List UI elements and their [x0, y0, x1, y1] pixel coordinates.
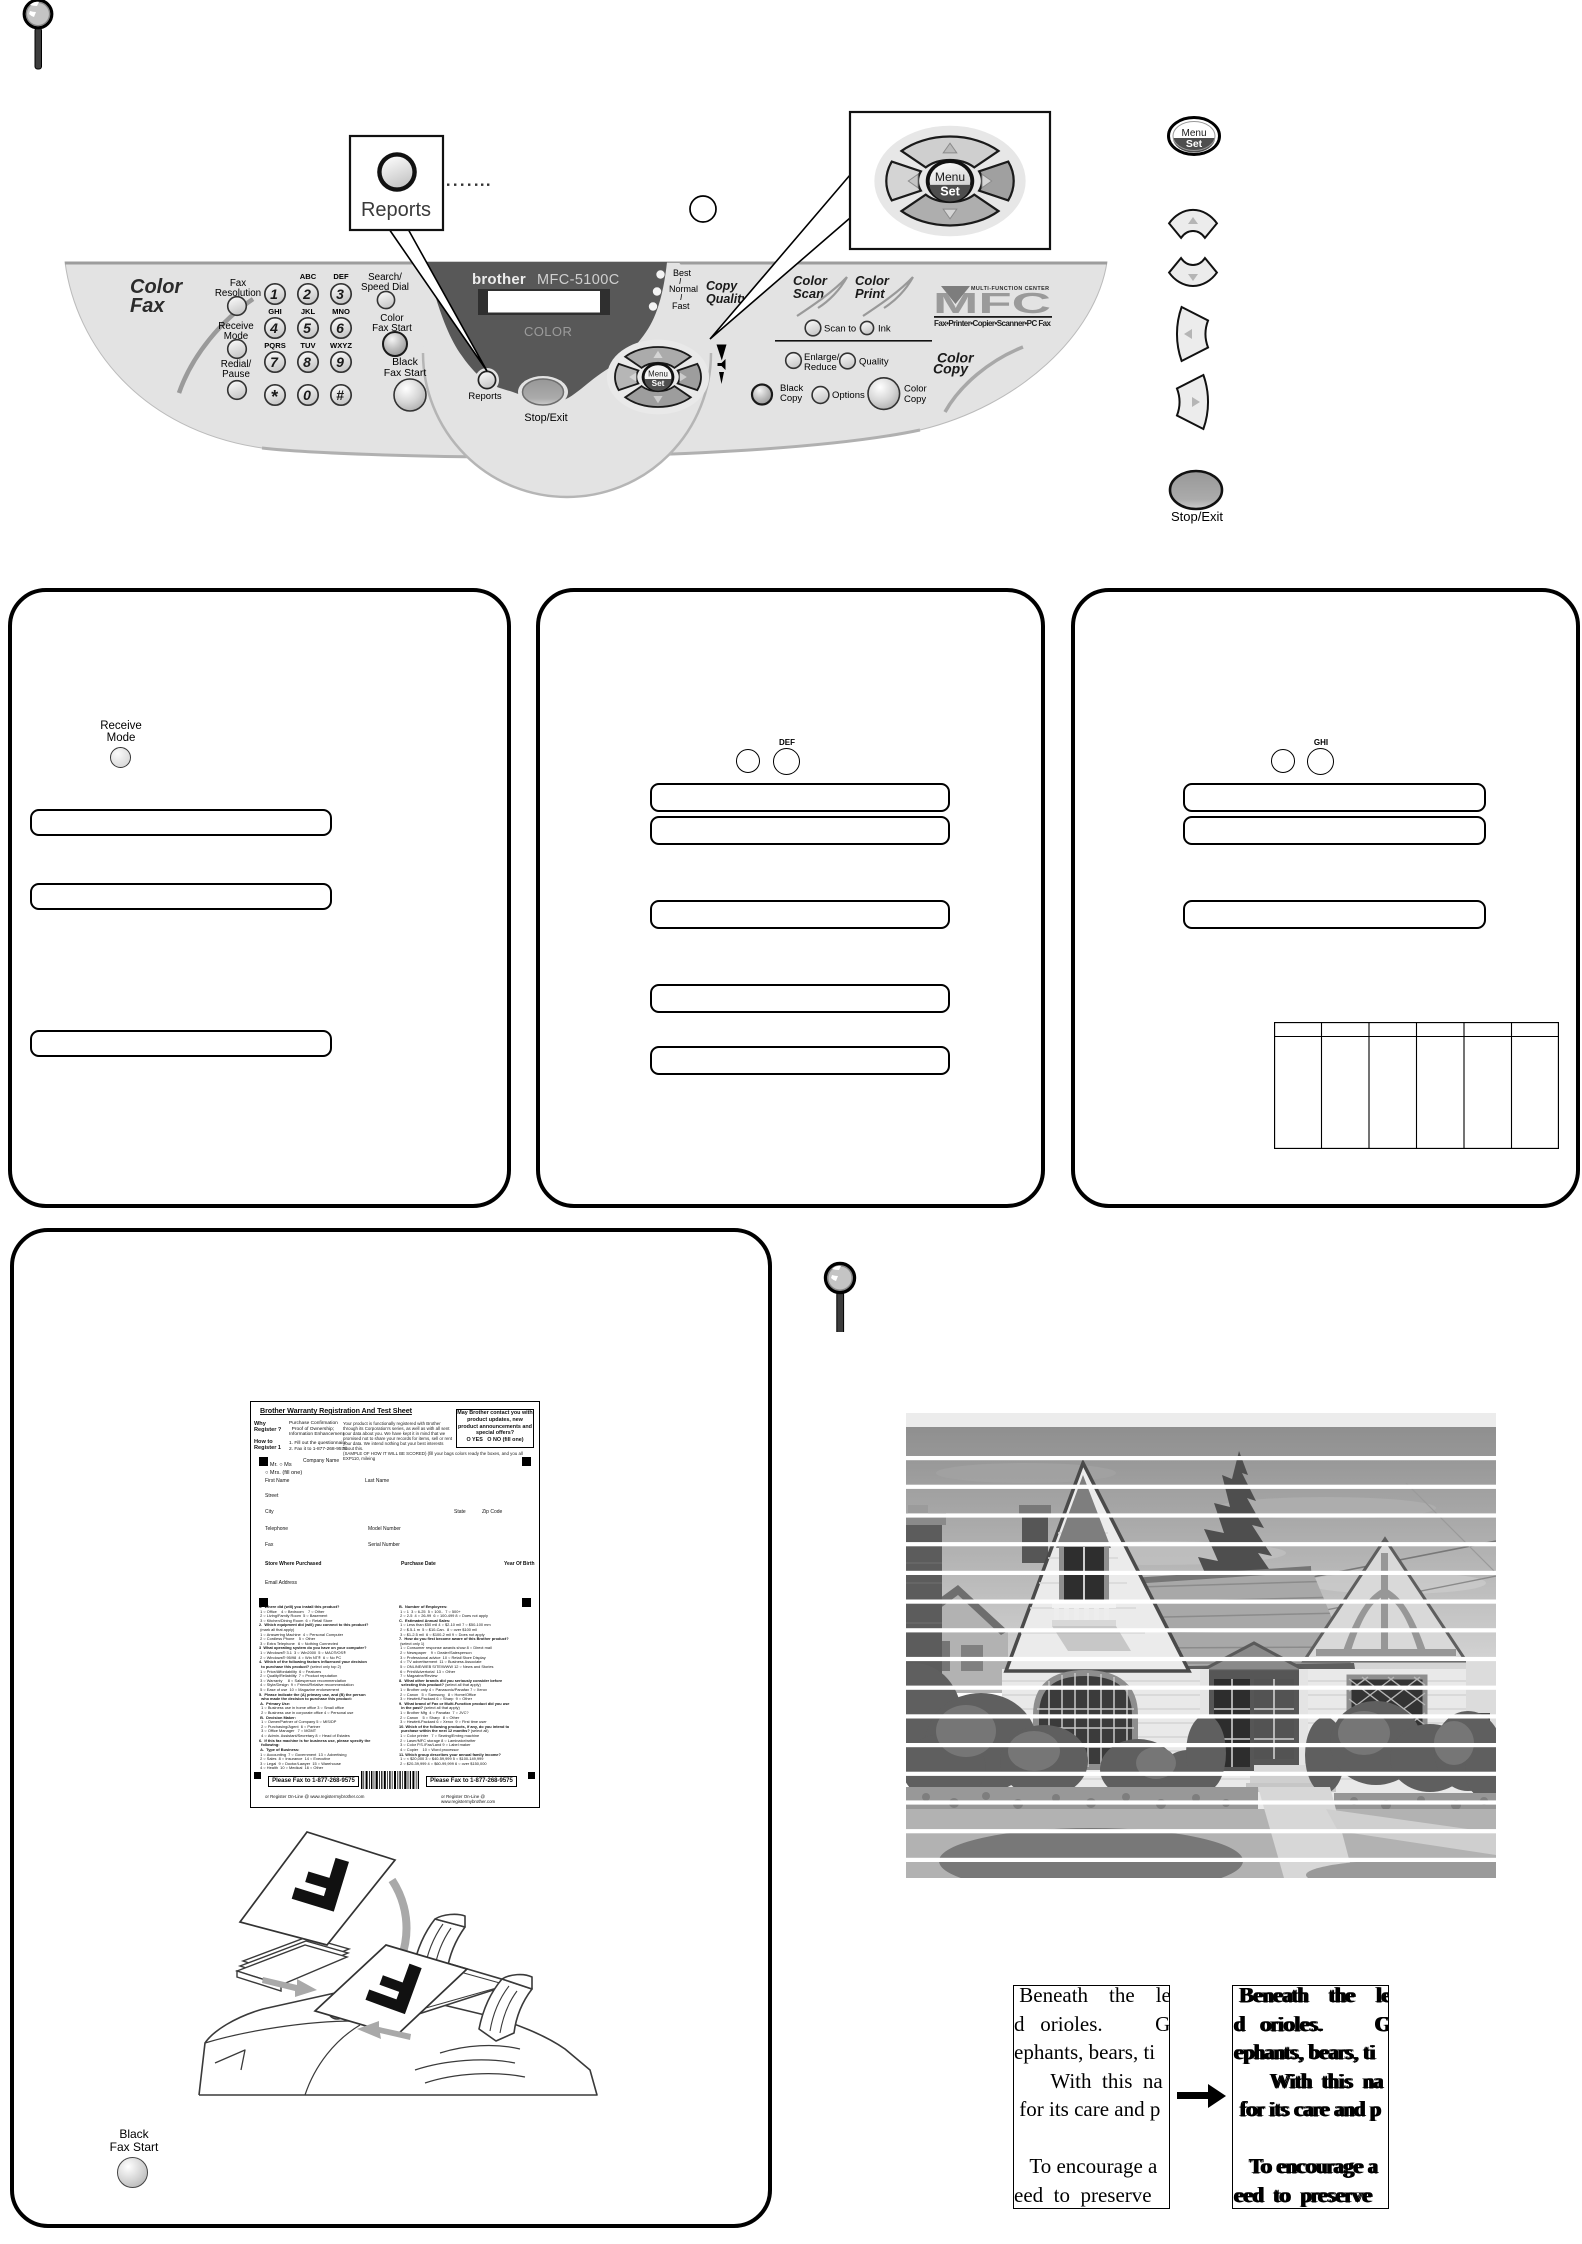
svg-text:#: # — [336, 387, 344, 403]
svg-text:Fax•Printer•Copier•Scanner•PC: Fax•Printer•Copier•Scanner•PC Fax — [934, 319, 1052, 328]
svg-text:7: 7 — [270, 354, 279, 370]
svg-text:Reduce: Reduce — [804, 362, 837, 373]
svg-text:Stop/Exit: Stop/Exit — [1171, 509, 1223, 524]
svg-text:Reports: Reports — [361, 199, 431, 221]
svg-text:MNO: MNO — [332, 307, 350, 316]
svg-text:Reports: Reports — [468, 391, 502, 402]
svg-text:Options: Options — [832, 390, 865, 401]
svg-text:*: * — [270, 387, 278, 407]
svg-text:Copy: Copy — [780, 393, 802, 404]
svg-text:WXYZ: WXYZ — [330, 341, 352, 350]
svg-text:1: 1 — [270, 286, 278, 302]
svg-text:GHI: GHI — [268, 307, 282, 316]
svg-text:TUV: TUV — [300, 341, 316, 350]
svg-text:DEF: DEF — [333, 272, 349, 281]
svg-text:Normal: Normal — [669, 284, 698, 294]
svg-text:MFC: MFC — [933, 288, 1051, 320]
svg-text:MULTI-FUNCTION CENTER: MULTI-FUNCTION CENTER — [971, 286, 1049, 292]
svg-text:Menu: Menu — [648, 369, 668, 378]
svg-text:Scan to: Scan to — [824, 324, 856, 335]
svg-text:2: 2 — [302, 286, 311, 302]
svg-text:brother: brother — [472, 271, 526, 288]
svg-text:Menu: Menu — [935, 170, 965, 184]
svg-text:Set: Set — [940, 185, 960, 199]
svg-text:3: 3 — [336, 286, 344, 302]
svg-text:Quality: Quality — [859, 357, 889, 368]
svg-text:JKL: JKL — [301, 307, 316, 316]
svg-text:ABC: ABC — [300, 272, 317, 281]
svg-text:9: 9 — [336, 354, 344, 370]
svg-text:Best: Best — [673, 268, 692, 278]
svg-text:6: 6 — [336, 320, 344, 336]
svg-text:Fax: Fax — [130, 295, 165, 317]
svg-text:Set: Set — [652, 379, 665, 388]
svg-text:Scan: Scan — [793, 286, 824, 301]
svg-text:Fast: Fast — [672, 301, 690, 311]
svg-text:Copy: Copy — [706, 279, 738, 293]
svg-text:5: 5 — [303, 320, 311, 336]
svg-text:Copy: Copy — [904, 394, 926, 405]
svg-text:Print: Print — [855, 286, 885, 301]
svg-text:COLOR: COLOR — [524, 324, 572, 339]
svg-text:Fax Start: Fax Start — [384, 367, 427, 379]
svg-text:8: 8 — [303, 354, 311, 370]
svg-text:0: 0 — [303, 387, 311, 403]
svg-text:4: 4 — [269, 320, 278, 336]
svg-text:Color: Color — [904, 384, 927, 395]
svg-text:Stop/Exit: Stop/Exit — [524, 412, 567, 424]
svg-text:MFC-5100C: MFC-5100C — [537, 272, 620, 288]
svg-text:Pause: Pause — [222, 369, 250, 380]
svg-text:Ink: Ink — [878, 324, 891, 335]
svg-text:PQRS: PQRS — [264, 341, 286, 350]
svg-text:Set: Set — [1186, 138, 1203, 150]
svg-text:Copy: Copy — [933, 361, 969, 377]
